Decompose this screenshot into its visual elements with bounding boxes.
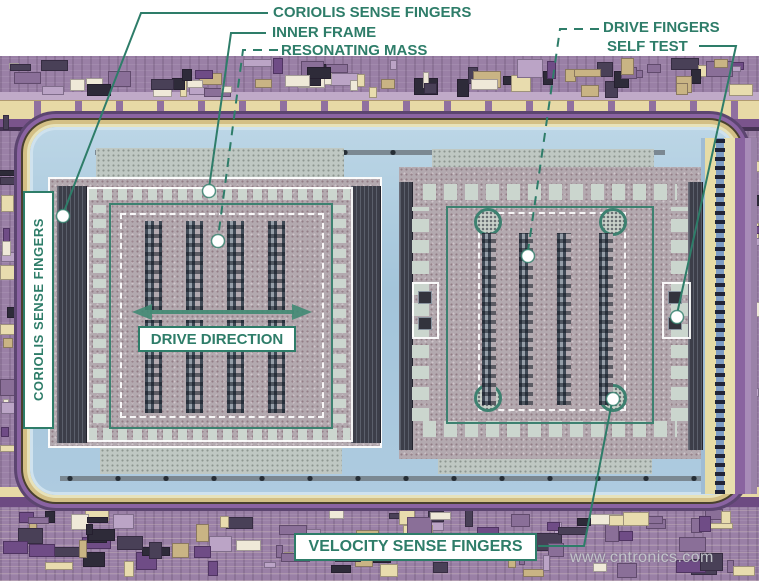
component-rect [433, 562, 448, 573]
electrode-pad [669, 318, 681, 329]
component-rect [619, 531, 633, 541]
component-rect [0, 324, 16, 335]
component-rect [390, 60, 397, 70]
component-rect [87, 84, 111, 96]
electrode-pad [419, 292, 431, 303]
component-rect [187, 80, 203, 88]
component-rect [221, 86, 232, 93]
component-rect [41, 60, 68, 71]
pad-row-top [423, 184, 677, 200]
component-rect [574, 69, 601, 77]
component-rect [10, 64, 31, 71]
velocity-comb-column [482, 233, 496, 405]
component-rect [255, 79, 272, 88]
component-rect [548, 543, 564, 557]
component-rect [699, 516, 711, 532]
component-rect [209, 536, 232, 552]
component-rect [243, 59, 272, 67]
component-rect [1, 427, 9, 437]
component-rect [558, 527, 587, 535]
coriolis-sense-finger-array-left [57, 186, 87, 443]
component-rect [3, 541, 28, 554]
component-rect [195, 70, 213, 79]
component-rect [381, 79, 395, 89]
drive-comb-column [145, 221, 162, 310]
coriolis-sense-finger-array-right [351, 186, 381, 443]
component-rect [508, 560, 516, 568]
component-rect [307, 67, 331, 79]
component-rect [605, 524, 619, 542]
anchor-shelf-bottom-right [438, 459, 652, 474]
velocity-comb-column [557, 233, 571, 405]
component-rect [86, 524, 93, 535]
anchor-shelf-bottom-left [100, 448, 342, 474]
annotated-die-micrograph: www.cntronics.com CORIOLIS SENSE FINGERS… [0, 0, 759, 581]
electrode-pad [669, 292, 681, 303]
anchor-post [599, 208, 627, 236]
component-rect [1, 402, 15, 414]
label-coriolis-sense-fingers-side: CORIOLIS SENSE FINGERS [23, 191, 54, 429]
component-rect [0, 379, 16, 396]
component-rect [369, 87, 377, 98]
component-rect [285, 75, 310, 87]
component-rect [691, 69, 701, 84]
component-rect [0, 445, 16, 452]
component-rect [236, 540, 261, 551]
component-rect [226, 517, 253, 529]
component-rect [117, 536, 143, 550]
velocity-sense-finger-array-left [399, 182, 413, 450]
component-rect [623, 512, 649, 526]
anchor-shelf-top-right [432, 149, 654, 168]
component-rect [581, 85, 599, 97]
watermark: www.cntronics.com [570, 549, 714, 567]
velocity-comb-column [599, 233, 613, 405]
component-rect [331, 565, 351, 573]
component-rect [172, 543, 189, 558]
component-rect [577, 518, 591, 526]
component-rect [194, 546, 211, 558]
component-rect [0, 170, 16, 176]
label-inner-frame: INNER FRAME [272, 25, 376, 40]
component-rect [0, 265, 17, 280]
component-rect [28, 517, 49, 524]
component-rect [424, 83, 437, 94]
label-coriolis-sense-fingers-top: CORIOLIS SENSE FINGERS [273, 5, 471, 20]
component-rect [430, 512, 451, 520]
label-resonating-mass: RESONATING MASS [281, 43, 427, 58]
component-rect [54, 547, 80, 557]
component-rect [42, 86, 64, 95]
anchor-shelf-top-left [96, 148, 344, 178]
component-rect [0, 177, 17, 185]
component-rect [2, 241, 11, 256]
pad-column-left [93, 205, 106, 423]
drive-comb-column [268, 221, 285, 310]
label-self-test: SELF TEST [607, 39, 688, 54]
component-rect [543, 555, 550, 571]
component-rect [70, 79, 85, 91]
component-rect [220, 516, 229, 528]
component-rect [729, 84, 753, 96]
component-rect [149, 542, 162, 559]
component-rect [3, 115, 9, 130]
label-drive-fingers: DRIVE FINGERS [603, 20, 720, 35]
edge-comb-band [701, 138, 757, 494]
component-rect [196, 524, 209, 542]
component-rect [647, 64, 661, 73]
label-drive-direction: DRIVE DIRECTION [138, 326, 296, 352]
comb-teeth [715, 138, 725, 494]
component-rect [264, 562, 276, 568]
component-rect [87, 517, 108, 523]
drive-comb-column [186, 221, 203, 310]
component-rect [182, 69, 192, 81]
component-rect [108, 71, 131, 87]
component-rect [517, 59, 543, 78]
component-rect [708, 523, 733, 529]
component-rect [465, 509, 473, 527]
component-rect [407, 517, 432, 534]
component-rect [273, 58, 283, 74]
component-rect [3, 338, 13, 348]
component-rect [357, 74, 365, 87]
electrode-pad [419, 318, 431, 329]
component-rect [523, 569, 544, 577]
component-rect [113, 514, 134, 529]
left-gyro-structure [48, 177, 382, 448]
self-test-electrode-right [662, 282, 691, 339]
component-rect [151, 79, 174, 90]
suspension-beam-bottom [60, 476, 705, 481]
component-rect [511, 514, 530, 527]
anchor-post [474, 208, 502, 236]
label-velocity-sense-fingers: VELOCITY SENSE FINGERS [294, 533, 537, 561]
component-rect [1, 195, 14, 212]
component-rect [45, 562, 73, 570]
component-rect [471, 79, 498, 90]
component-rect [7, 307, 15, 318]
component-rect [714, 59, 728, 68]
component-rect [329, 510, 344, 519]
component-rect [547, 61, 556, 79]
component-rect [621, 58, 634, 75]
right-gyro-structure [399, 167, 701, 459]
component-rect [380, 564, 398, 577]
component-rect [676, 83, 688, 95]
component-rect [79, 540, 87, 558]
component-rect [124, 561, 134, 577]
component-rect [733, 566, 755, 576]
self-test-electrode-left [412, 282, 439, 339]
component-rect [208, 561, 218, 576]
pad-column-right [333, 205, 346, 423]
drive-comb-column [227, 221, 244, 310]
component-rect [14, 72, 41, 84]
component-rect [29, 544, 55, 557]
velocity-comb-column [519, 233, 533, 405]
